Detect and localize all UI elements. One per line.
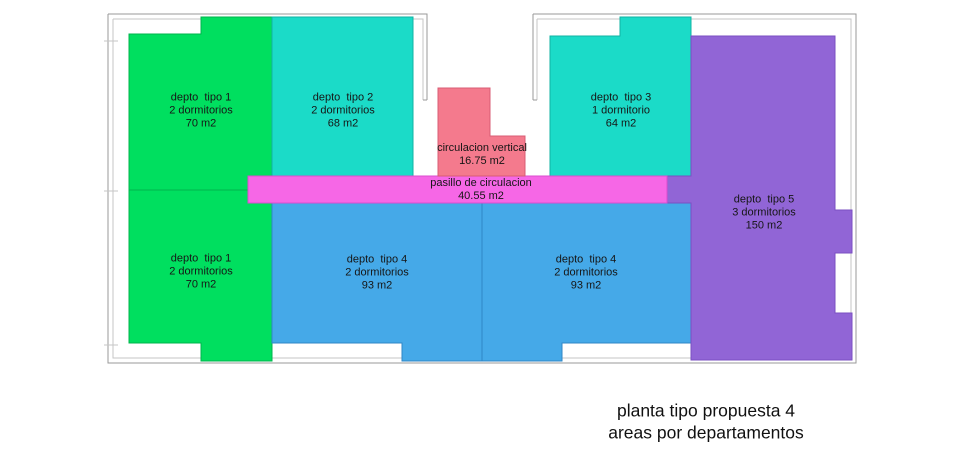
room-shape-depto-tipo-4-right bbox=[482, 203, 691, 361]
room-shape-depto-tipo-4-left bbox=[272, 203, 482, 361]
floor-plan: depto tipo 1 2 dormitorios 70 m2 depto t… bbox=[0, 0, 967, 453]
room-shape-circulacion-vertical bbox=[438, 88, 525, 176]
plan-title-line1: planta tipo propuesta 4 bbox=[556, 401, 856, 423]
room-shape-depto-tipo-5 bbox=[667, 36, 852, 360]
room-shape-depto-tipo-1-upper bbox=[129, 17, 272, 190]
room-shape-depto-tipo-3 bbox=[550, 17, 691, 176]
room-shape-depto-tipo-1-lower bbox=[129, 190, 272, 361]
room-shape-pasillo-circulacion bbox=[248, 176, 667, 203]
room-shape-depto-tipo-2 bbox=[272, 17, 413, 176]
left-wall-ticks bbox=[104, 41, 118, 345]
plan-title-line2: areas por departamentos bbox=[556, 422, 856, 444]
plan-title: planta tipo propuesta 4 areas por depart… bbox=[556, 401, 856, 444]
floor-plan-drawing bbox=[0, 0, 967, 453]
